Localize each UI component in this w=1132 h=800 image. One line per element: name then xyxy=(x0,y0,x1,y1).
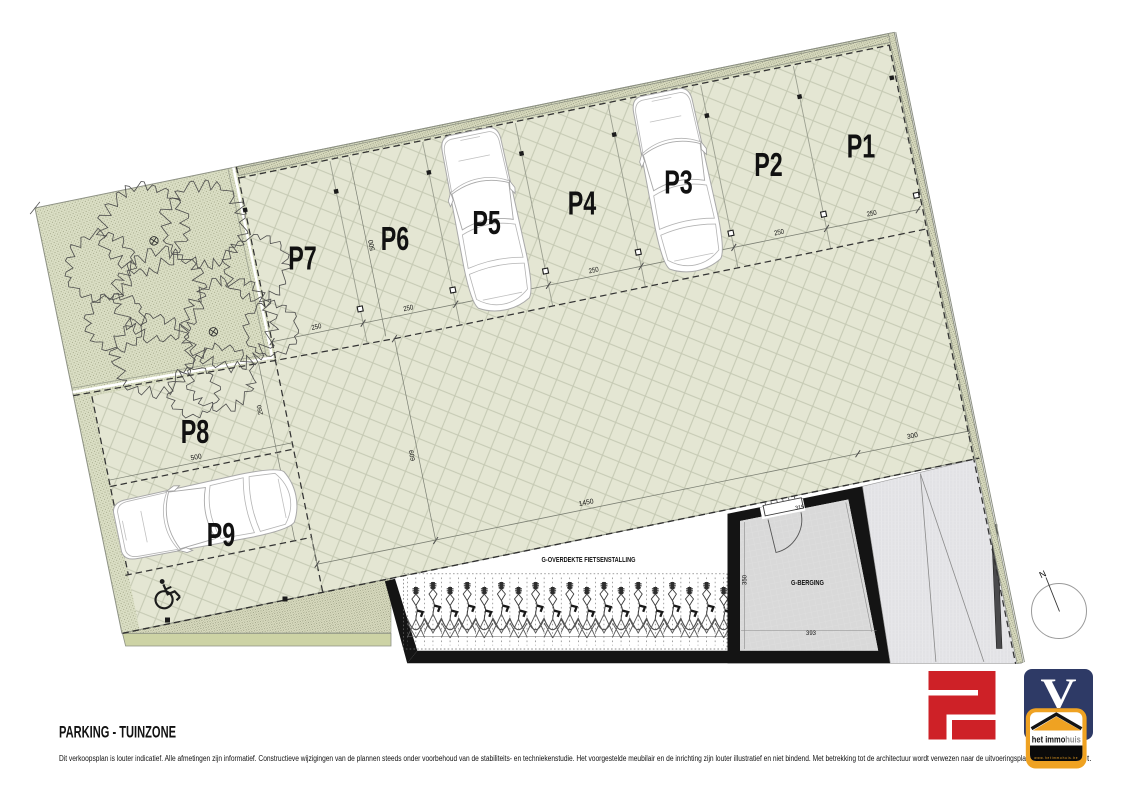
svg-text:G-BERGING: G-BERGING xyxy=(791,580,824,587)
svg-text:PARKING - TUINZONE: PARKING - TUINZONE xyxy=(59,724,176,742)
svg-text:P3: P3 xyxy=(664,165,693,202)
svg-text:het immohuis: het immohuis xyxy=(1032,735,1081,746)
svg-text:P8: P8 xyxy=(181,414,210,451)
svg-text:Dit verkoopsplan is louter ind: Dit verkoopsplan is louter indicatief. A… xyxy=(59,754,1026,763)
svg-text:P1: P1 xyxy=(847,129,876,166)
svg-text:t.: t. xyxy=(1087,754,1091,763)
svg-text:P2: P2 xyxy=(754,147,783,184)
svg-text:www.hetimmohuis.be: www.hetimmohuis.be xyxy=(1034,755,1078,760)
svg-text:P5: P5 xyxy=(472,205,501,242)
svg-text:P4: P4 xyxy=(568,186,597,223)
svg-text:G-OVERDEKTE FIETSENSTALLING: G-OVERDEKTE FIETSENSTALLING xyxy=(542,555,636,564)
svg-text:P6: P6 xyxy=(381,221,410,258)
svg-text:350: 350 xyxy=(743,574,749,585)
svg-text:P7: P7 xyxy=(288,241,317,278)
svg-text:393: 393 xyxy=(806,631,817,637)
svg-text:P9: P9 xyxy=(207,517,236,554)
